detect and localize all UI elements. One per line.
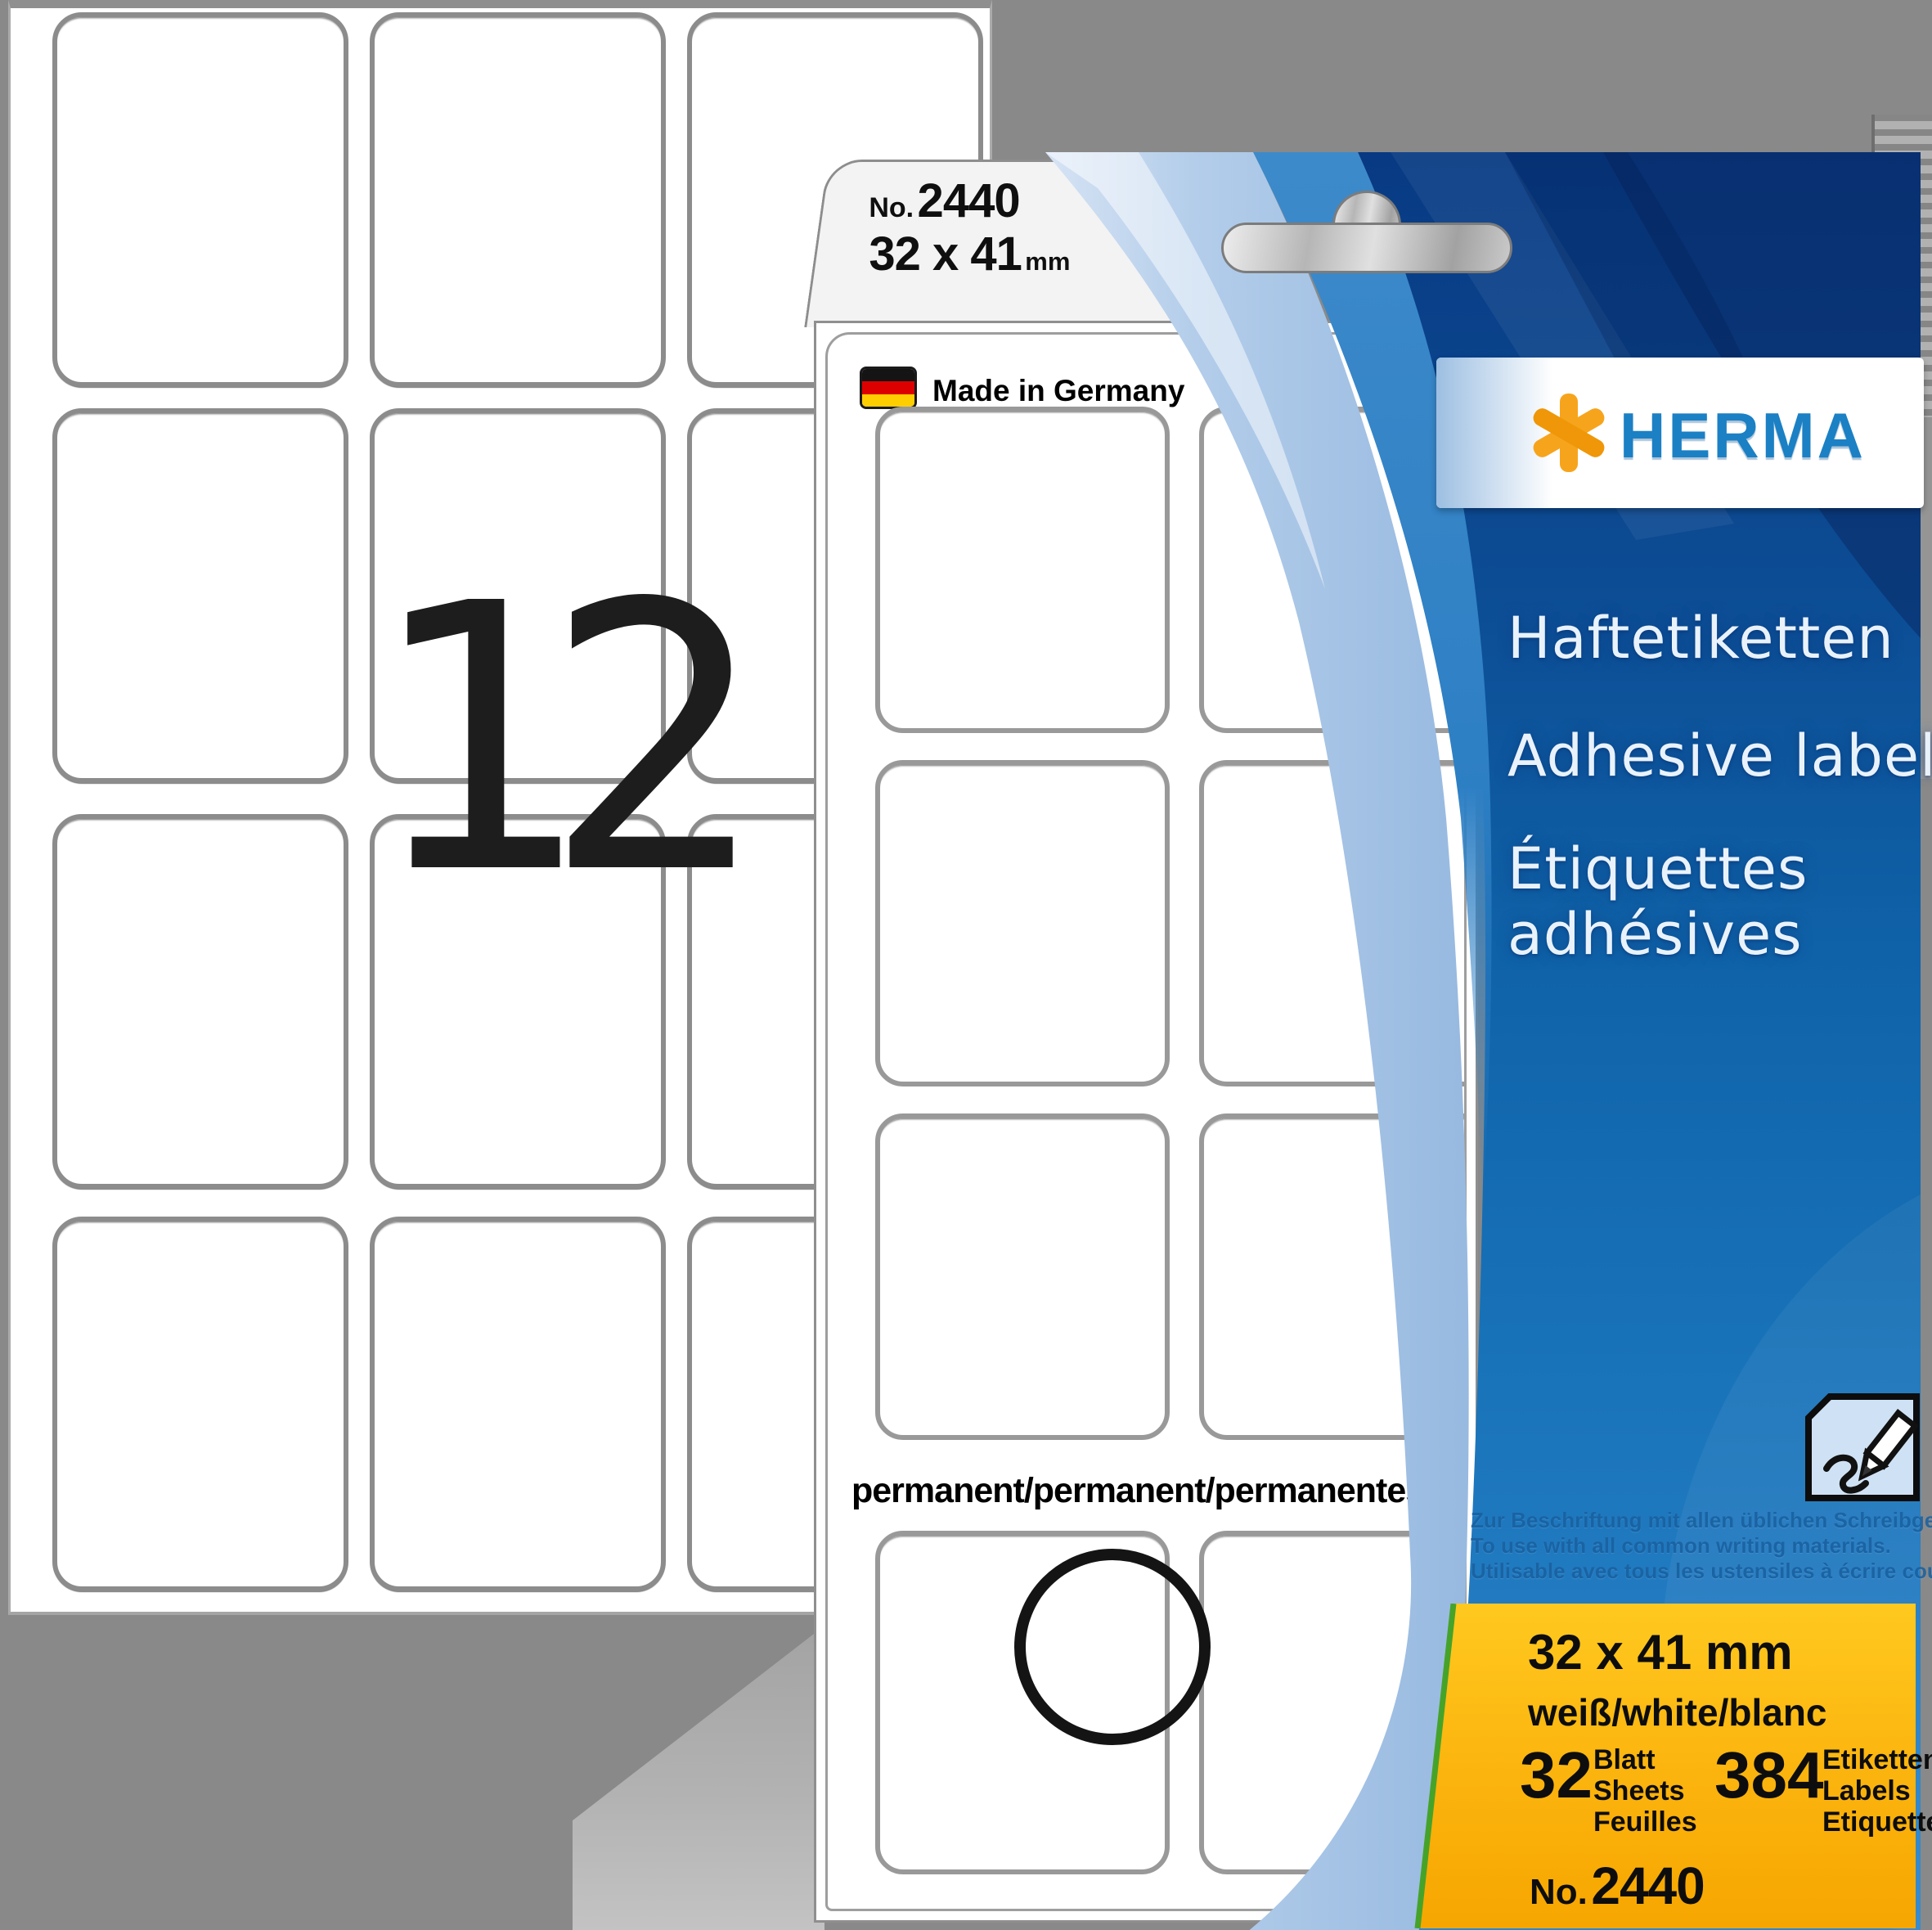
label-cell: [52, 408, 348, 783]
brand-band: HERMA: [1436, 358, 1924, 508]
product-number-label: No.: [869, 192, 914, 223]
order-number-label: No.: [1530, 1872, 1588, 1912]
label-cell: [875, 760, 1170, 1086]
sheets-units: Blatt Sheets Feuilles: [1593, 1744, 1697, 1838]
herma-asterisk-icon: [1528, 392, 1610, 474]
drawn-circle-mark: [1014, 1549, 1211, 1745]
label-cell: [52, 1217, 348, 1591]
writable-pencil-icon: [1805, 1393, 1920, 1501]
label-cell: [52, 814, 348, 1189]
hang-tab: No. 2440 32 x 41 mm: [804, 160, 1241, 327]
sheets-count: 32: [1520, 1743, 1593, 1808]
usage-note-fr: Utilisable avec tous les ustensiles à éc…: [1471, 1559, 1932, 1584]
package-shadow: [573, 1626, 824, 1930]
permanent-label: permanent/permanent/permanentes: [851, 1471, 1424, 1511]
size-unit: mm: [1025, 247, 1070, 276]
package-card-inner: Made in Germany permanent/permanent/perm…: [825, 332, 1467, 1911]
label-cell: [1199, 1531, 1467, 1874]
title-french: Étiquettes adhésives: [1507, 836, 1808, 967]
label-cell: [875, 1113, 1170, 1440]
hang-tab-text: No. 2440 32 x 41 mm: [821, 162, 1229, 281]
size-line: 32 x 41 mm: [869, 228, 1229, 281]
label-cell: [1199, 407, 1467, 733]
labels-unit-en: Labels: [1822, 1775, 1932, 1806]
title-french-line1: Étiquettes: [1507, 836, 1808, 902]
made-in-germany-label: Made in Germany: [932, 374, 1184, 408]
flag-red-stripe: [862, 381, 914, 394]
usage-note: Zur Beschriftung mit allen üblichen Schr…: [1471, 1508, 1932, 1584]
spec-color: weiß/white/blanc: [1528, 1690, 1827, 1734]
sheets-unit-de: Blatt: [1593, 1744, 1697, 1775]
order-number: No. 2440: [1530, 1856, 1705, 1916]
label-cell: [370, 12, 666, 387]
title-french-line2: adhésives: [1507, 902, 1808, 967]
labels-units: Etiketten Labels Etiquettes: [1822, 1744, 1932, 1838]
labels-unit-de: Etiketten: [1822, 1744, 1932, 1775]
euro-slot: [1221, 223, 1512, 273]
usage-note-en: To use with all common writing materials…: [1471, 1533, 1932, 1559]
package-card: Made in Germany permanent/permanent/perm…: [814, 321, 1478, 1923]
sheets-unit-en: Sheets: [1593, 1775, 1697, 1806]
german-flag-icon: [860, 367, 917, 409]
product-number-value: 2440: [918, 174, 1020, 227]
label-cell: [52, 12, 348, 387]
title-german: Haftetiketten: [1507, 605, 1894, 671]
labels-count: 384: [1714, 1743, 1823, 1808]
product-number-line: No. 2440: [869, 175, 1229, 228]
label-cell: [370, 1217, 666, 1591]
spec-size: 32 x 41 mm: [1528, 1624, 1793, 1680]
brand-name: HERMA: [1620, 398, 1866, 473]
label-cell: [875, 407, 1170, 733]
flag-black-stripe: [862, 369, 914, 381]
usage-note-de: Zur Beschriftung mit allen üblichen Schr…: [1471, 1508, 1932, 1533]
title-english: Adhesive labels: [1507, 723, 1932, 789]
product-packshot: 12 No. 2440 32 x 41 mm Made in Germany: [0, 0, 1932, 1930]
flag-gold-stripe: [862, 394, 914, 407]
label-cell: [1199, 1113, 1467, 1440]
label-cell: [1199, 760, 1467, 1086]
sheets-unit-fr: Feuilles: [1593, 1806, 1697, 1838]
size-value: 32 x 41: [869, 227, 1022, 281]
order-number-value: 2440: [1591, 1856, 1704, 1915]
sheet-label-count: 12: [354, 556, 730, 925]
labels-unit-fr: Etiquettes: [1822, 1806, 1932, 1838]
